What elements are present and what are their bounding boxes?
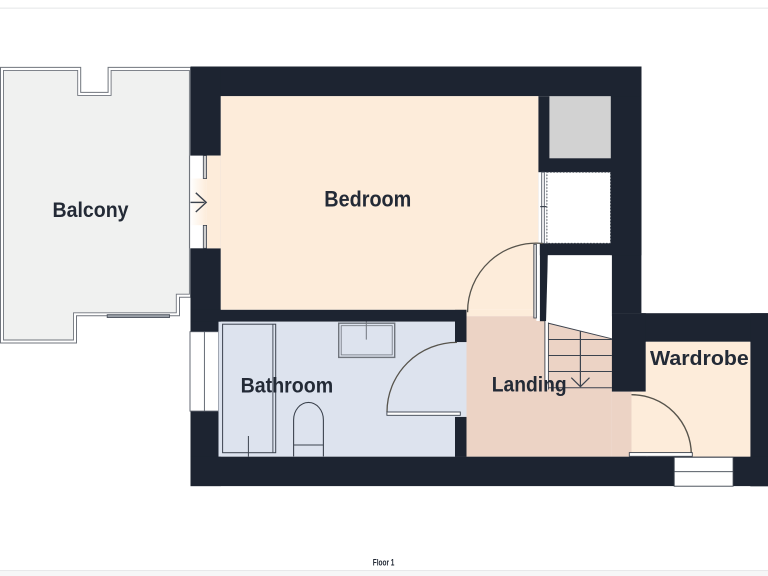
svg-text:Bathroom: Bathroom <box>241 373 334 397</box>
svg-text:Bedroom: Bedroom <box>324 187 411 212</box>
svg-text:Landing: Landing <box>492 374 567 397</box>
svg-text:Wardrobe: Wardrobe <box>650 347 749 370</box>
svg-text:Balcony: Balcony <box>53 198 129 222</box>
svg-text:Floor 1: Floor 1 <box>373 558 395 568</box>
